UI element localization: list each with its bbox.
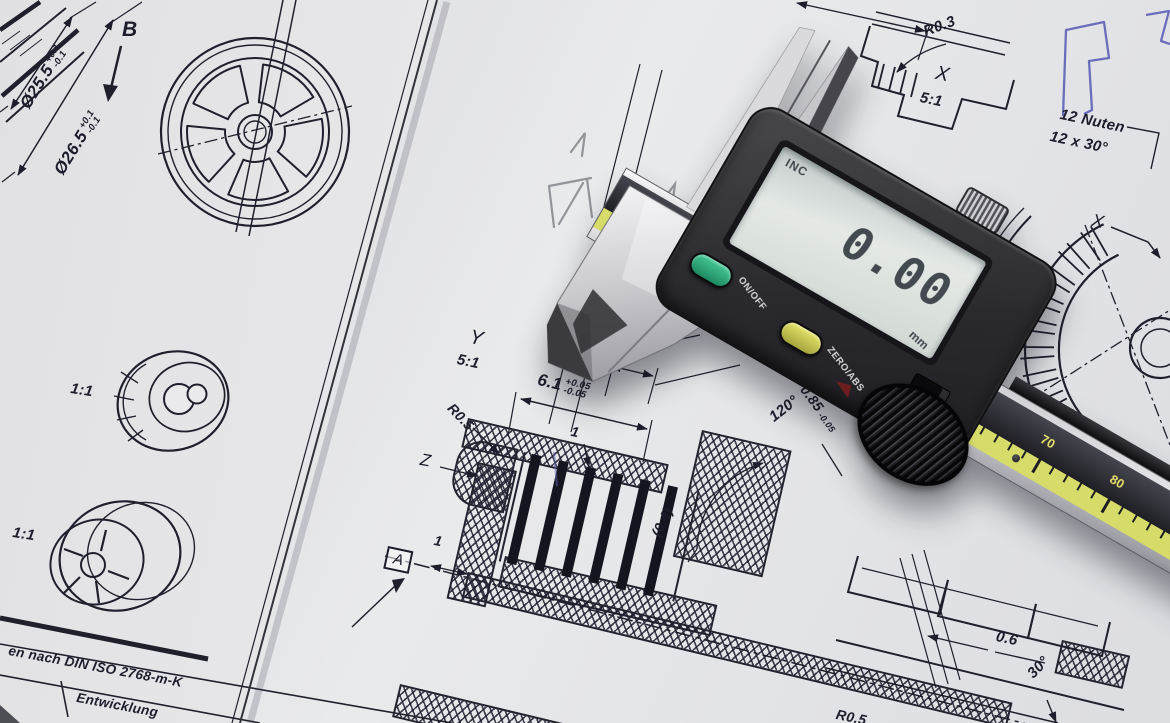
lcd-measurement-value: 0.00	[830, 216, 965, 319]
power-button	[685, 248, 737, 293]
scale-label-1: 1:1	[69, 380, 94, 400]
brand-triangle-logo	[833, 381, 852, 398]
lcd-unit: mm	[906, 327, 931, 352]
left-sheet-art	[0, 0, 452, 723]
scale-label-2: 1:1	[11, 524, 36, 544]
zero-abs-button	[775, 316, 827, 361]
datum-a-label: A	[392, 551, 405, 570]
section-label-b: B	[122, 18, 137, 42]
photo-scene: Ø25.5 +0.1-0.1 Ø26.5 +0.1-0.1 B 1:1 1:1 …	[0, 0, 1170, 723]
lcd-mode-indicator: INC	[783, 156, 811, 180]
power-button-label: ON/OFF	[736, 275, 769, 313]
